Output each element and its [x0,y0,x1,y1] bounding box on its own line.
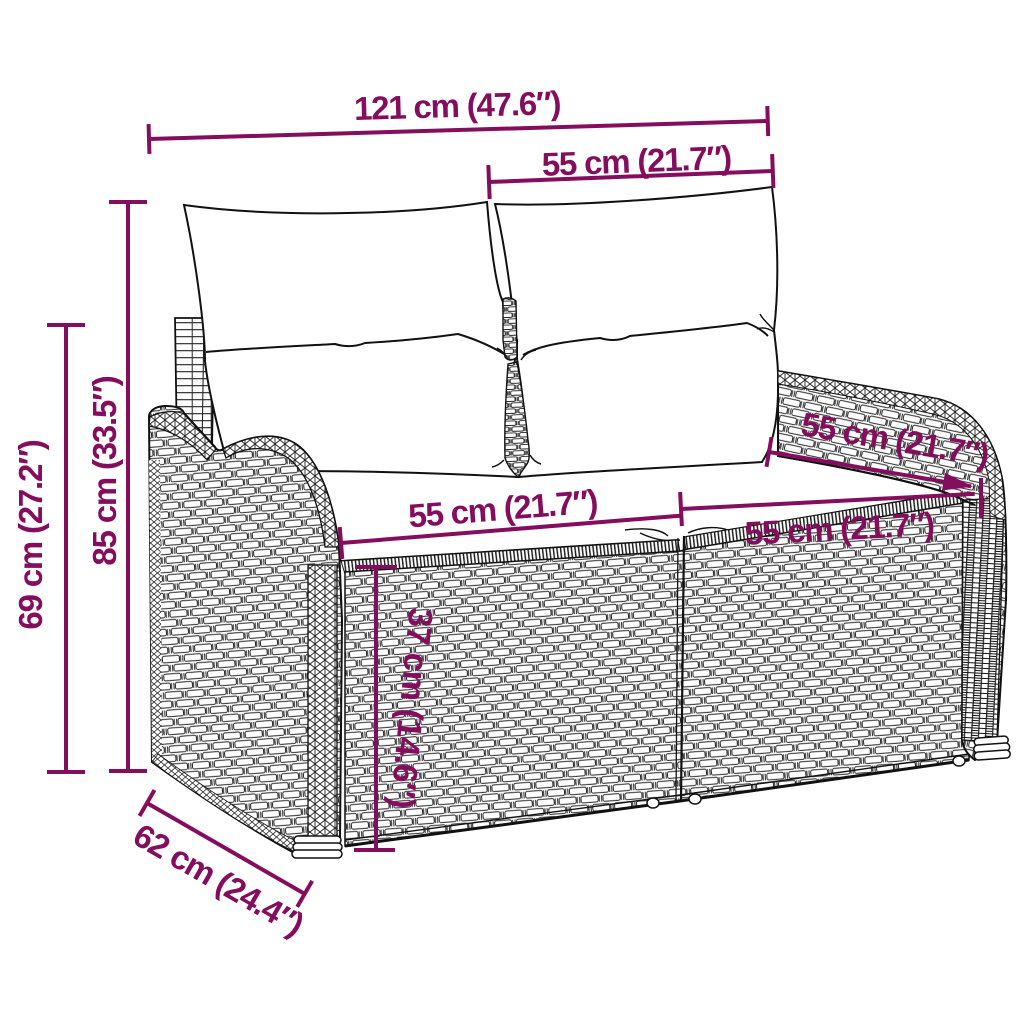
svg-text:121 cm (47.6″): 121 cm (47.6″) [354,84,562,127]
svg-text:55 cm (21.7″): 55 cm (21.7″) [541,139,732,183]
svg-text:85 cm (33.5″): 85 cm (33.5″) [86,376,123,565]
svg-text:69 cm (27.2″): 69 cm (27.2″) [12,440,49,629]
